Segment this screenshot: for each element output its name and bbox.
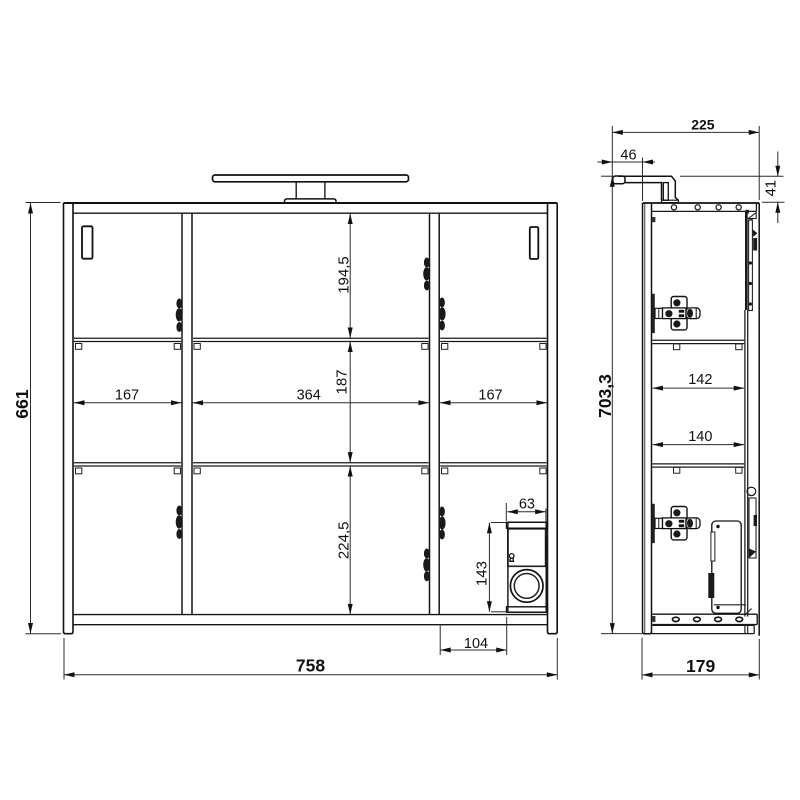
svg-text:225: 225 <box>691 117 715 133</box>
svg-text:179: 179 <box>686 656 715 676</box>
svg-text:104: 104 <box>464 636 488 652</box>
svg-text:41: 41 <box>762 180 779 197</box>
svg-text:758: 758 <box>296 655 325 675</box>
svg-text:194,5: 194,5 <box>336 256 353 294</box>
svg-text:661: 661 <box>12 389 32 418</box>
svg-text:140: 140 <box>688 429 712 445</box>
svg-text:703,3: 703,3 <box>595 374 615 418</box>
svg-text:187: 187 <box>334 369 351 394</box>
svg-text:167: 167 <box>115 388 139 404</box>
svg-text:63: 63 <box>519 497 535 513</box>
svg-text:142: 142 <box>688 372 712 388</box>
svg-text:364: 364 <box>297 388 321 404</box>
svg-text:46: 46 <box>620 147 636 163</box>
svg-text:167: 167 <box>478 388 502 404</box>
svg-text:143: 143 <box>473 561 490 586</box>
svg-text:224,5: 224,5 <box>336 522 353 560</box>
